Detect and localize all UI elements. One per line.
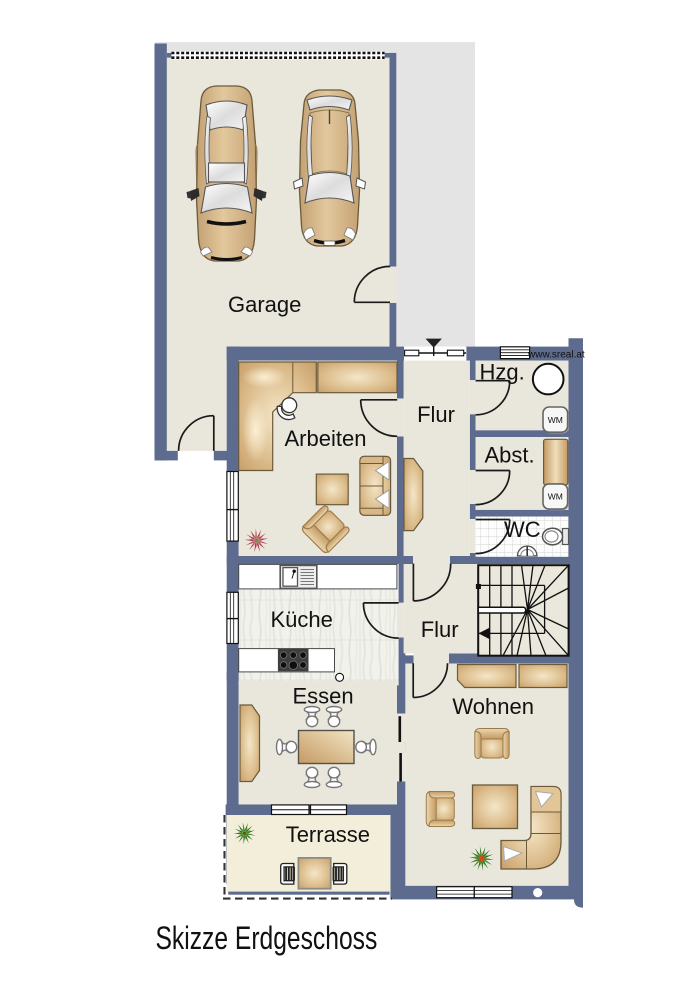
svg-text:Abst.: Abst. xyxy=(485,442,535,467)
svg-text:Flur: Flur xyxy=(421,617,459,642)
svg-text:www.sreal.at: www.sreal.at xyxy=(527,349,585,360)
svg-text:WM: WM xyxy=(548,415,563,425)
svg-text:WC: WC xyxy=(504,517,541,542)
svg-text:Hzg.: Hzg. xyxy=(480,360,525,385)
svg-text:Skizze Erdgeschoss: Skizze Erdgeschoss xyxy=(156,921,378,957)
svg-text:Flur: Flur xyxy=(417,402,455,427)
svg-text:Garage: Garage xyxy=(228,292,301,317)
svg-text:Essen: Essen xyxy=(293,684,354,709)
svg-text:WM: WM xyxy=(548,492,563,502)
svg-text:Arbeiten: Arbeiten xyxy=(285,426,367,451)
svg-text:Küche: Küche xyxy=(271,607,333,632)
svg-text:Wohnen: Wohnen xyxy=(452,694,534,719)
svg-text:Terrasse: Terrasse xyxy=(286,822,370,847)
